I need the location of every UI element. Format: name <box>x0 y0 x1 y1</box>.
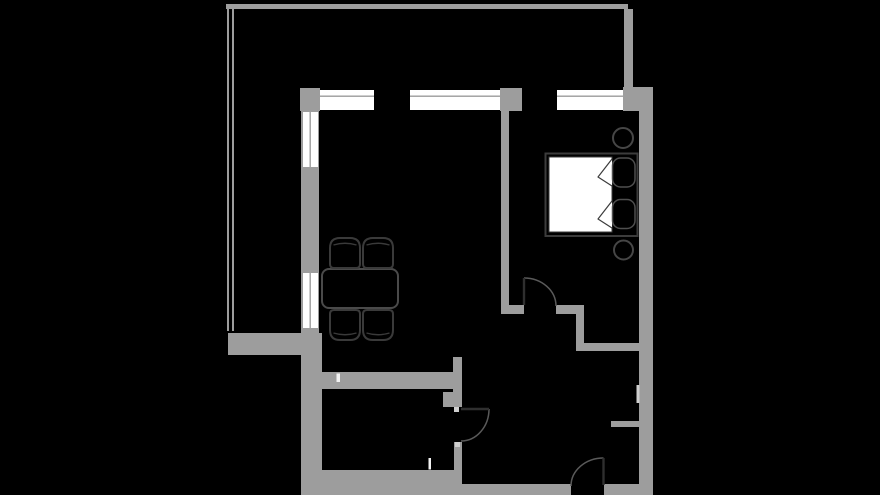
bedroom-nook-step-wall <box>576 305 584 343</box>
top-window-bedroom-frame-line <box>557 96 623 97</box>
left-wall-mid <box>301 333 322 355</box>
right-wall <box>639 87 653 495</box>
kitchen-door-pier <box>443 392 462 407</box>
round-side-table-bottom <box>614 241 633 260</box>
bottom-wall-entry-right <box>604 484 653 495</box>
bedroom-nook-bottom-wall <box>576 343 640 351</box>
chair-bottom-left <box>330 310 360 340</box>
kitchen-top-wall-mark <box>337 374 341 383</box>
top-wall-center-pier <box>500 88 522 111</box>
entry-niche-stub-wall <box>611 421 639 427</box>
balcony-rail-outer <box>227 4 229 331</box>
right-wall-vent-notch <box>637 385 640 403</box>
top-window-living-2 <box>410 90 500 110</box>
round-side-table-top <box>613 128 633 148</box>
kitchen-top-wall <box>322 372 462 389</box>
chair-top-left <box>330 238 360 268</box>
balcony-right-wall <box>624 9 633 88</box>
chair-bottom-right <box>363 310 393 340</box>
top-window-living-1-frame-line <box>320 96 374 97</box>
kitchen-door-jamb-upper <box>454 407 459 412</box>
kitchen-wall-stub-upper <box>453 357 462 392</box>
dining-table <box>322 269 398 308</box>
balcony-rail-inner <box>232 9 234 331</box>
bottom-wall-kitchen <box>301 470 462 495</box>
living-bedroom-divider-wall <box>501 111 509 310</box>
bottom-wall-entry-left <box>462 484 571 495</box>
floor-plan-canvas <box>0 0 880 495</box>
balcony-top-wall <box>226 4 628 9</box>
top-window-bedroom <box>557 90 623 110</box>
plan-background <box>0 0 880 495</box>
kitchen-door-jamb-lower <box>455 442 460 447</box>
left-window-upper-frame-line <box>310 112 311 167</box>
kitchen-bottom-wall-mark <box>429 458 432 470</box>
floor-plan-svg <box>0 0 880 495</box>
chair-top-right <box>363 238 393 268</box>
balcony-bottom-wall <box>228 333 303 355</box>
pillow-top <box>613 158 636 187</box>
left-window-lower-frame-line <box>310 273 311 328</box>
top-window-living-1 <box>320 90 374 110</box>
pillow-bottom <box>613 200 636 229</box>
top-window-living-2-frame-line <box>410 96 500 97</box>
bedroom-door-jamb-wall <box>501 305 524 314</box>
